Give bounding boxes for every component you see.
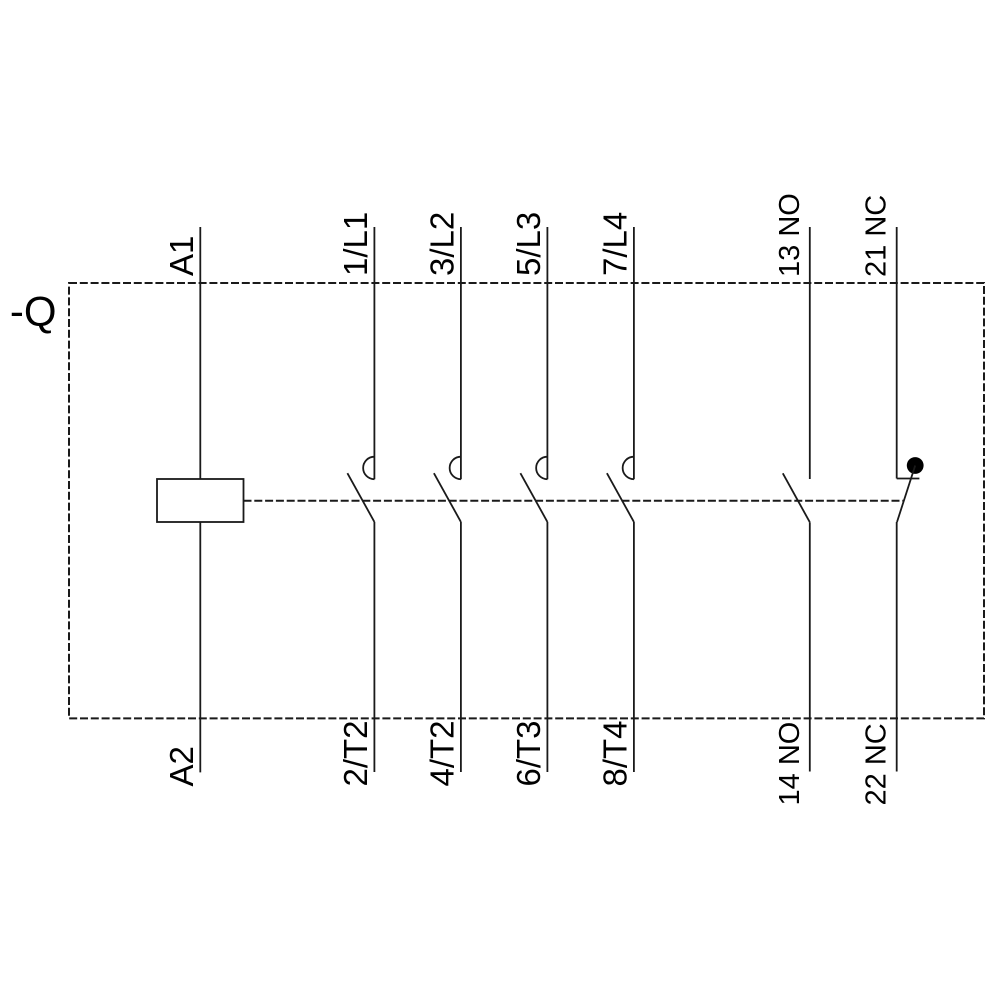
svg-text:22 NC: 22 NC [861, 723, 893, 805]
svg-text:A1: A1 [163, 236, 200, 276]
svg-text:4/T2: 4/T2 [423, 720, 460, 786]
svg-text:A2: A2 [163, 746, 200, 786]
svg-text:2/T2: 2/T2 [337, 720, 374, 786]
svg-text:13 NO: 13 NO [774, 193, 806, 277]
svg-text:7/L4: 7/L4 [596, 212, 633, 276]
svg-text:14 NO: 14 NO [774, 722, 806, 806]
svg-text:8/T4: 8/T4 [596, 720, 633, 786]
svg-text:5/L3: 5/L3 [510, 212, 547, 276]
svg-text:-Q: -Q [10, 288, 57, 335]
svg-text:21 NC: 21 NC [861, 195, 893, 277]
svg-text:1/L1: 1/L1 [337, 212, 374, 276]
svg-text:3/L2: 3/L2 [423, 212, 460, 276]
svg-text:6/T3: 6/T3 [510, 720, 547, 786]
